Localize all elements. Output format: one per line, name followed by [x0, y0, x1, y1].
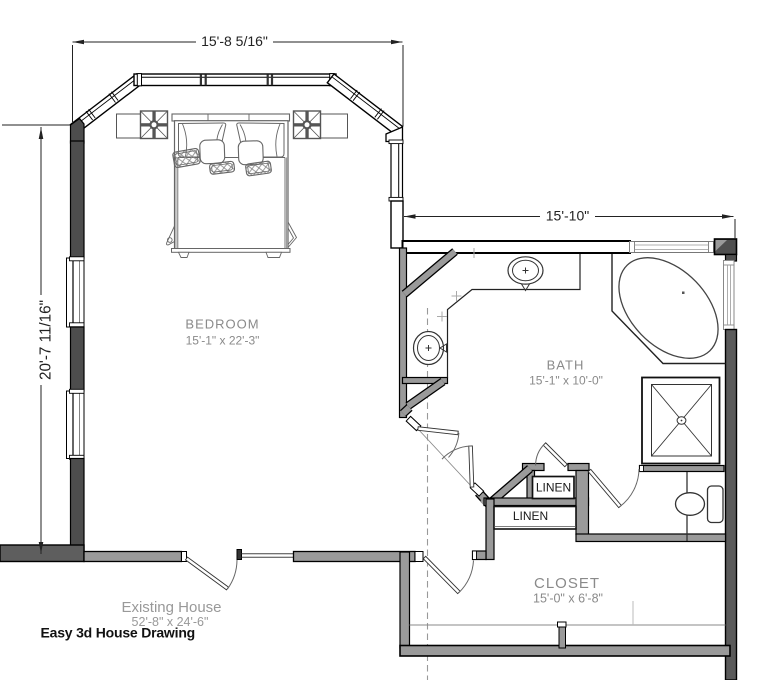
svg-text:15'-1" x 10'-0": 15'-1" x 10'-0": [529, 374, 603, 388]
svg-text:20'-7 11/16": 20'-7 11/16": [38, 300, 55, 380]
svg-text:LINEN: LINEN: [536, 481, 571, 495]
svg-text:BATH: BATH: [547, 358, 585, 373]
svg-text:Easy 3d House Drawing: Easy 3d House Drawing: [41, 625, 196, 641]
svg-text:15'-0" x 6'-8": 15'-0" x 6'-8": [533, 592, 603, 606]
svg-text:LINEN: LINEN: [513, 509, 548, 523]
svg-text:BEDROOM: BEDROOM: [185, 317, 259, 332]
svg-text:Existing House: Existing House: [121, 599, 221, 616]
svg-text:CLOSET: CLOSET: [534, 575, 600, 592]
svg-text:15'-8 5/16": 15'-8 5/16": [201, 33, 268, 49]
svg-text:15'-1" x 22'-3": 15'-1" x 22'-3": [186, 334, 260, 348]
svg-text:15'-10": 15'-10": [546, 208, 589, 224]
